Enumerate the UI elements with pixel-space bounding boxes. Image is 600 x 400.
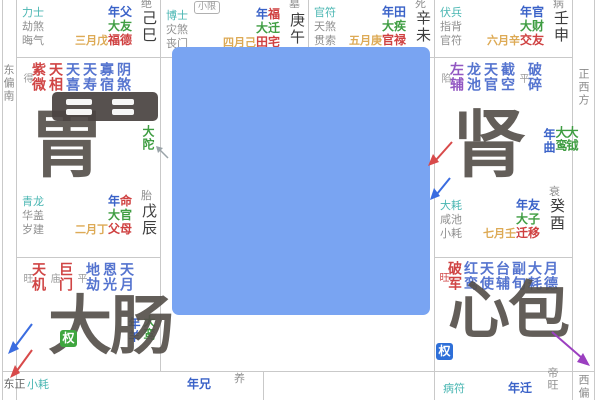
decade-palace-label: 大子: [516, 213, 540, 225]
year-palace-label: 年官: [520, 6, 544, 18]
ziwei-chart: 东偏南 正东 正西方 西偏 力士 劫煞 晦气 年父 大友 三月戊福德 绝 己巳 …: [0, 0, 600, 400]
god-star: 官符: [440, 35, 462, 46]
grid-line: [594, 0, 595, 400]
star-guasu: 寡宿: [99, 62, 113, 92]
decade-palace-label: 大疾: [382, 20, 406, 32]
palace-cell-si[interactable]: 力士 劫煞 晦气 年父 大友 三月戊福德 绝 己巳: [16, 0, 160, 57]
year-palace-label: 年兄: [187, 378, 211, 390]
flying-arrow-red-icon: [426, 140, 454, 168]
natal-palace-label: 官禄: [382, 33, 406, 47]
natal-palace-label: 迁移: [516, 226, 540, 240]
star-tianxiang: 天相: [48, 62, 62, 92]
stem-branch-label: 庚午: [289, 12, 304, 46]
month-label: 六月辛: [487, 34, 520, 47]
hua-quan-badge: 权: [436, 343, 453, 360]
stem-branch-label: 辛未: [415, 10, 430, 44]
god-star: 小耗: [440, 228, 462, 239]
direction-label-west: 正西方: [578, 68, 589, 107]
natal-palace-label: 福德: [108, 33, 132, 47]
small-arrow-icon: [154, 144, 170, 160]
life-stage-label: 养: [234, 373, 245, 384]
tooltip-text-blob: [112, 99, 134, 105]
natal-palace-label: 父母: [108, 222, 132, 236]
month-label: 五月庚: [349, 34, 382, 47]
star-ziwei: 紫微得: [21, 62, 45, 92]
star-tianxi: 天喜: [65, 62, 79, 92]
decade-palace-label: 大迁: [256, 22, 280, 34]
direction-label-east-south: 东偏南: [3, 64, 14, 103]
organ-watermark-kidney: 肾: [452, 108, 524, 182]
star-posui: 破碎平: [517, 62, 541, 92]
decade-tianyue-label: 大钺: [566, 126, 578, 152]
god-star: 晦气: [22, 35, 44, 46]
year-palace-label: 年迁: [508, 382, 532, 394]
decade-palace-label: 大友: [108, 20, 132, 32]
star-tianji: 天机旺: [21, 262, 45, 292]
life-stage-label: 死: [415, 0, 426, 9]
god-star: 病符: [443, 383, 465, 394]
organ-watermark-large-intestine: 大肠: [48, 295, 172, 359]
star-tianyue-moon: 天月: [119, 262, 133, 292]
flying-arrow-red-icon: [8, 348, 34, 380]
star-longchi: 龙池: [466, 62, 480, 92]
palace-cell-bottom-right[interactable]: 病符 年迁 帝旺: [434, 371, 572, 400]
center-privacy-mask: [172, 47, 430, 315]
year-palace-label: 年命: [108, 195, 132, 207]
year-palace-label: 年福: [256, 8, 280, 20]
decade-palace-label: 大财: [520, 20, 544, 32]
star-enguang: 恩光: [102, 262, 116, 292]
flying-arrow-blue-icon: [428, 176, 452, 202]
tooltip-text-blob: [112, 109, 134, 115]
life-stage-label: 绝: [141, 0, 152, 9]
star-jiekong: 截空: [500, 62, 514, 92]
natal-palace-label: 交友: [520, 33, 544, 47]
god-star: 力士: [22, 7, 44, 18]
god-star: 岁建: [22, 224, 44, 235]
month-label: 七月壬: [483, 227, 516, 240]
year-palace-label: 年友: [516, 199, 540, 211]
grid-line: [263, 371, 264, 400]
god-star: 官符: [314, 7, 336, 18]
palace-cell-bottom-left[interactable]: 小耗 年兄 养: [16, 371, 263, 400]
flying-arrow-purple-icon: [548, 328, 592, 368]
tooltip-text-blob: [66, 99, 92, 105]
god-star: 指背: [440, 21, 462, 32]
god-star: 灾煞: [166, 24, 188, 35]
life-stage-label: 帝旺: [547, 367, 558, 391]
god-star: 劫煞: [22, 21, 44, 32]
year-palace-label: 年田: [382, 6, 406, 18]
star-jumen: 巨门庙: [48, 262, 72, 292]
god-star: 华盖: [22, 210, 44, 221]
star-list: 左辅陷 龙池 天官 截空 破碎平: [439, 62, 541, 92]
month-label: 二月丁: [75, 223, 108, 236]
year-palace-label: 年父: [108, 6, 132, 18]
star-list: 天机旺 巨门庙 地劫平 恩光 天月: [21, 262, 133, 292]
god-star: 青龙: [22, 196, 44, 207]
tooltip-text-blob: [66, 109, 92, 115]
hover-tooltip: [52, 92, 158, 121]
god-star: 咸池: [440, 214, 462, 225]
god-star: 天煞: [314, 21, 336, 32]
life-stage-label: 墓: [289, 0, 300, 9]
stem-branch-label: 癸酉: [549, 198, 564, 232]
stem-branch-label: 己巳: [141, 10, 156, 44]
star-zuofu: 左辅陷: [439, 62, 463, 92]
god-star: 小耗: [27, 379, 49, 390]
direction-label-west-south: 西偏: [578, 374, 589, 400]
decade-palace-label: 大官: [108, 209, 132, 221]
star-tianshou: 天寿: [82, 62, 96, 92]
star-yinsha: 阴煞: [116, 62, 130, 92]
god-star: 贯索: [314, 35, 336, 46]
palace-cell-shen[interactable]: 伏兵 指背 官符 年官 大财 六月辛交友 病 壬申: [434, 0, 572, 57]
god-star: 博士: [166, 10, 188, 21]
decade-tuoluo-label: 大陀: [142, 125, 154, 151]
hua-quan-badge: 权: [60, 330, 77, 347]
star-tianguan: 天官: [483, 62, 497, 92]
month-label: 三月戊: [75, 34, 108, 47]
star-dijie: 地劫平: [75, 262, 99, 292]
star-list: 紫微得 天相 天喜 天寿 寡宿 阴煞: [21, 62, 130, 92]
life-stage-label: 衰: [549, 186, 560, 197]
life-stage-label: 病: [553, 0, 564, 9]
stem-branch-label: 壬申: [553, 10, 568, 44]
god-star: 伏兵: [440, 7, 462, 18]
xiaoxian-chip[interactable]: 小限: [194, 1, 220, 14]
stem-branch-label: 戊辰: [141, 203, 156, 237]
grid-line: [2, 0, 3, 400]
life-stage-label: 胎: [141, 190, 152, 201]
